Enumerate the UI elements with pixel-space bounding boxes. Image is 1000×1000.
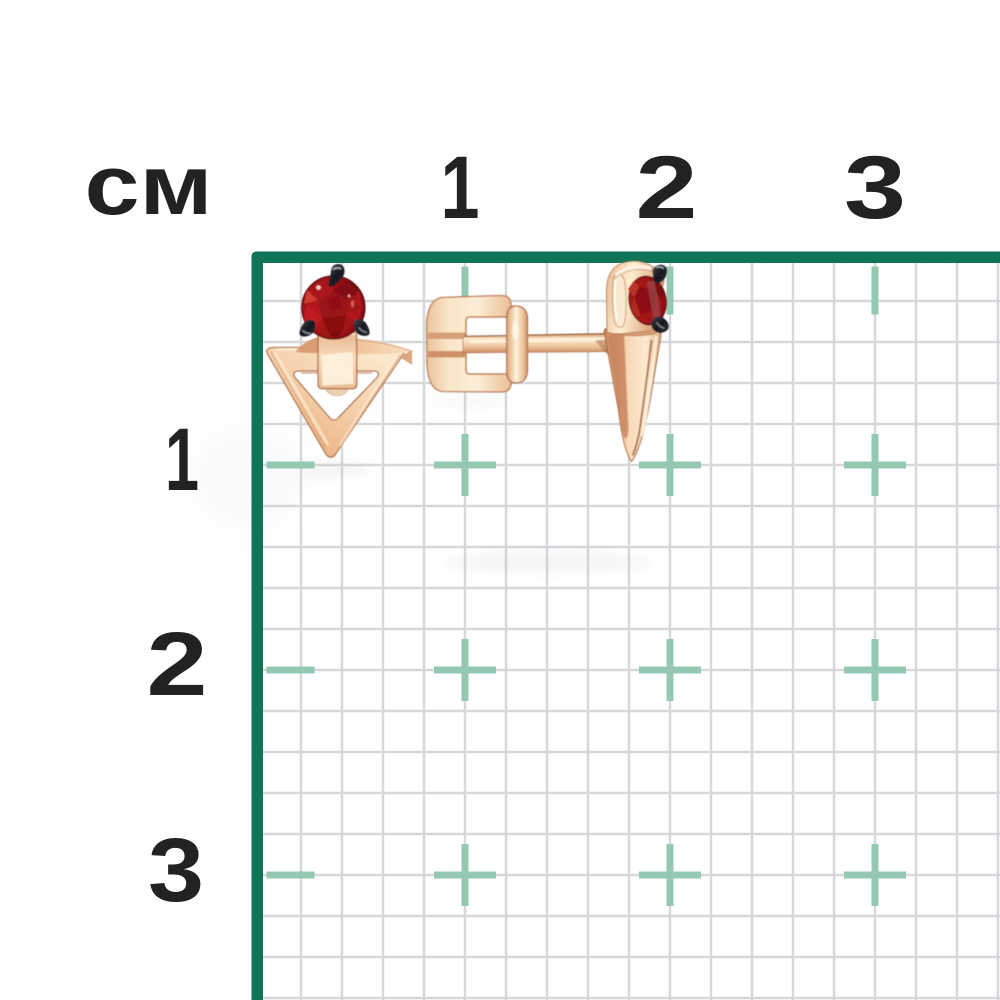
- svg-text:2: 2: [147, 615, 208, 715]
- svg-text:1: 1: [165, 409, 199, 509]
- svg-text:1: 1: [441, 137, 480, 237]
- svg-text:3: 3: [148, 821, 204, 921]
- svg-text:см: см: [85, 138, 213, 232]
- svg-text:2: 2: [636, 137, 698, 237]
- svg-text:3: 3: [844, 137, 906, 237]
